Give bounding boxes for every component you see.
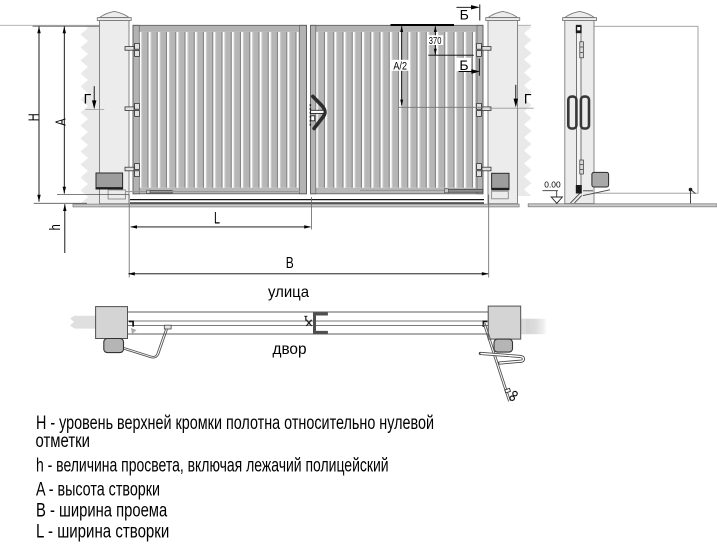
svg-text:370: 370 xyxy=(429,36,442,47)
svg-text:h: h xyxy=(46,224,63,230)
svg-text:двор: двор xyxy=(273,341,307,358)
svg-text:h - величина просвета, включая: h - величина просвета, включая лежачий п… xyxy=(36,456,389,477)
svg-text:отметки: отметки xyxy=(36,431,91,452)
svg-text:H: H xyxy=(25,113,42,121)
svg-text:A - высота створки: A - высота створки xyxy=(36,479,160,500)
svg-text:B - ширина проема: B - ширина проема xyxy=(36,500,168,521)
svg-text:B: B xyxy=(286,255,294,272)
svg-text:H - уровень верхней кромки пол: H - уровень верхней кромки полотна относ… xyxy=(36,413,434,434)
svg-text:Г: Г xyxy=(84,91,92,107)
svg-text:Г: Г xyxy=(524,91,532,107)
svg-text:улица: улица xyxy=(268,284,309,301)
svg-text:A/2: A/2 xyxy=(393,61,407,73)
svg-text:A: A xyxy=(52,118,69,126)
svg-text:0.00: 0.00 xyxy=(544,179,561,189)
svg-text:L - ширина створки: L - ширина створки xyxy=(36,521,169,542)
svg-text:L: L xyxy=(214,210,220,228)
svg-text:Б: Б xyxy=(460,6,469,22)
svg-text:Б: Б xyxy=(459,57,468,73)
